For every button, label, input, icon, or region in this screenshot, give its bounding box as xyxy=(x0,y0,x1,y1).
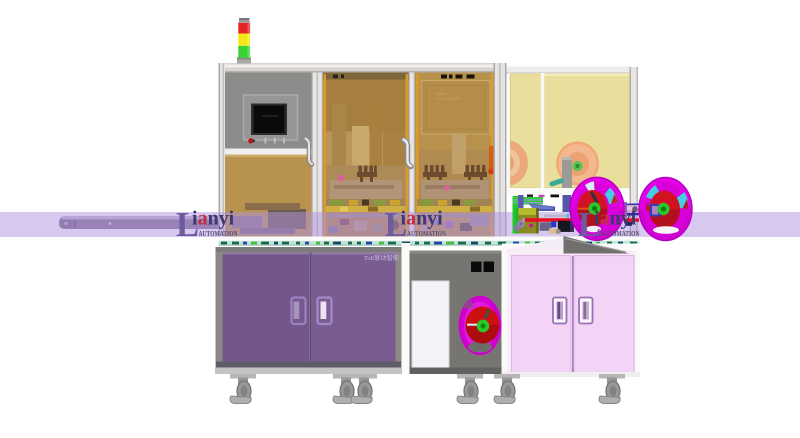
svg-text:ianyi: ianyi xyxy=(192,208,235,230)
svg-text:AUTOMATION: AUTOMATION xyxy=(407,231,446,238)
svg-text:AUTOMATION: AUTOMATION xyxy=(601,231,640,238)
svg-text:inspectionSR: inspectionSR xyxy=(437,96,460,101)
svg-text:ianyi: ianyi xyxy=(401,208,444,230)
svg-text:ToE联动智能: ToE联动智能 xyxy=(364,254,399,262)
svg-text:ianyi: ianyi xyxy=(594,208,637,230)
svg-text:AUTOMATION: AUTOMATION xyxy=(199,231,238,238)
